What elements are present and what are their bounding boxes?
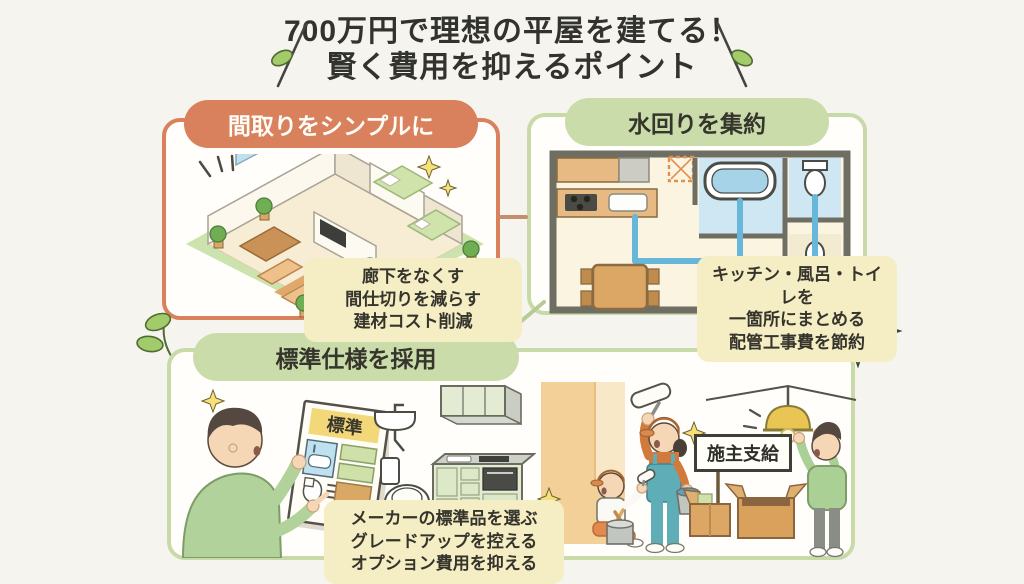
- floorplan-callout: 廊下をなくす 間仕切りを減らす 建材コスト削減: [304, 258, 522, 342]
- wall-sink: [375, 405, 415, 451]
- panel-plumbing-header: 水回りを集約: [565, 98, 829, 146]
- dining-set: [581, 265, 659, 309]
- panel-standard-spec: 標準仕様を採用 標準: [167, 348, 855, 560]
- ceiling-lines: [706, 386, 856, 400]
- panel-simple-floorplan: 間取りをシンプルに: [162, 118, 500, 320]
- panel-connector-line: [499, 215, 528, 219]
- callout-line: メーカーの標準品を選ぶ: [338, 508, 550, 531]
- callout-line: 間仕切りを減らす: [318, 289, 508, 312]
- plumbing-callout: キッチン・風呂・トイレを 一箇所にまとめる 配管工事費を節約: [697, 256, 897, 362]
- callout-line: 廊下をなくす: [318, 266, 508, 289]
- emphasis-lines: [200, 156, 233, 176]
- infographic-canvas: 700万円で理想の平屋を建てる！ 賢く費用を抑えるポイント 間取りをシンプルに: [0, 0, 1024, 576]
- title-line1: 700万円で理想の平屋を建てる！: [0, 14, 1024, 50]
- callout-line: 一箇所にまとめる: [711, 309, 883, 332]
- sparkle-icon: [418, 156, 456, 196]
- cardboard-boxes: [684, 484, 806, 538]
- callout-line: 建材コスト削減: [318, 311, 508, 334]
- sparkle-icon: [202, 390, 224, 412]
- title-line2: 賢く費用を抑えるポイント: [0, 50, 1024, 86]
- window: [236, 154, 262, 165]
- leaf-slash-decoration-left: [268, 20, 318, 92]
- title-block: 700万円で理想の平屋を建てる！ 賢く費用を抑えるポイント: [0, 14, 1024, 86]
- owner-supplied-sign: 施主支給: [694, 434, 792, 472]
- callout-line: キッチン・風呂・トイレを: [711, 264, 883, 309]
- panel-simple-floorplan-header: 間取りをシンプルに: [184, 100, 478, 148]
- panel-plumbing-cluster: 水回りを集約: [527, 113, 867, 315]
- toilet: [803, 161, 827, 196]
- upper-cabinet: [441, 386, 521, 424]
- callout-line: オプション費用を抑える: [338, 553, 550, 576]
- leaf-slash-decoration-right: [706, 20, 756, 92]
- callout-line: グレードアップを控える: [338, 531, 550, 554]
- callout-line: 配管工事費を節約: [711, 332, 883, 355]
- standard-spec-callout: メーカーの標準品を選ぶ グレードアップを控える オプション費用を抑える: [324, 500, 564, 584]
- bathtub: [705, 163, 775, 199]
